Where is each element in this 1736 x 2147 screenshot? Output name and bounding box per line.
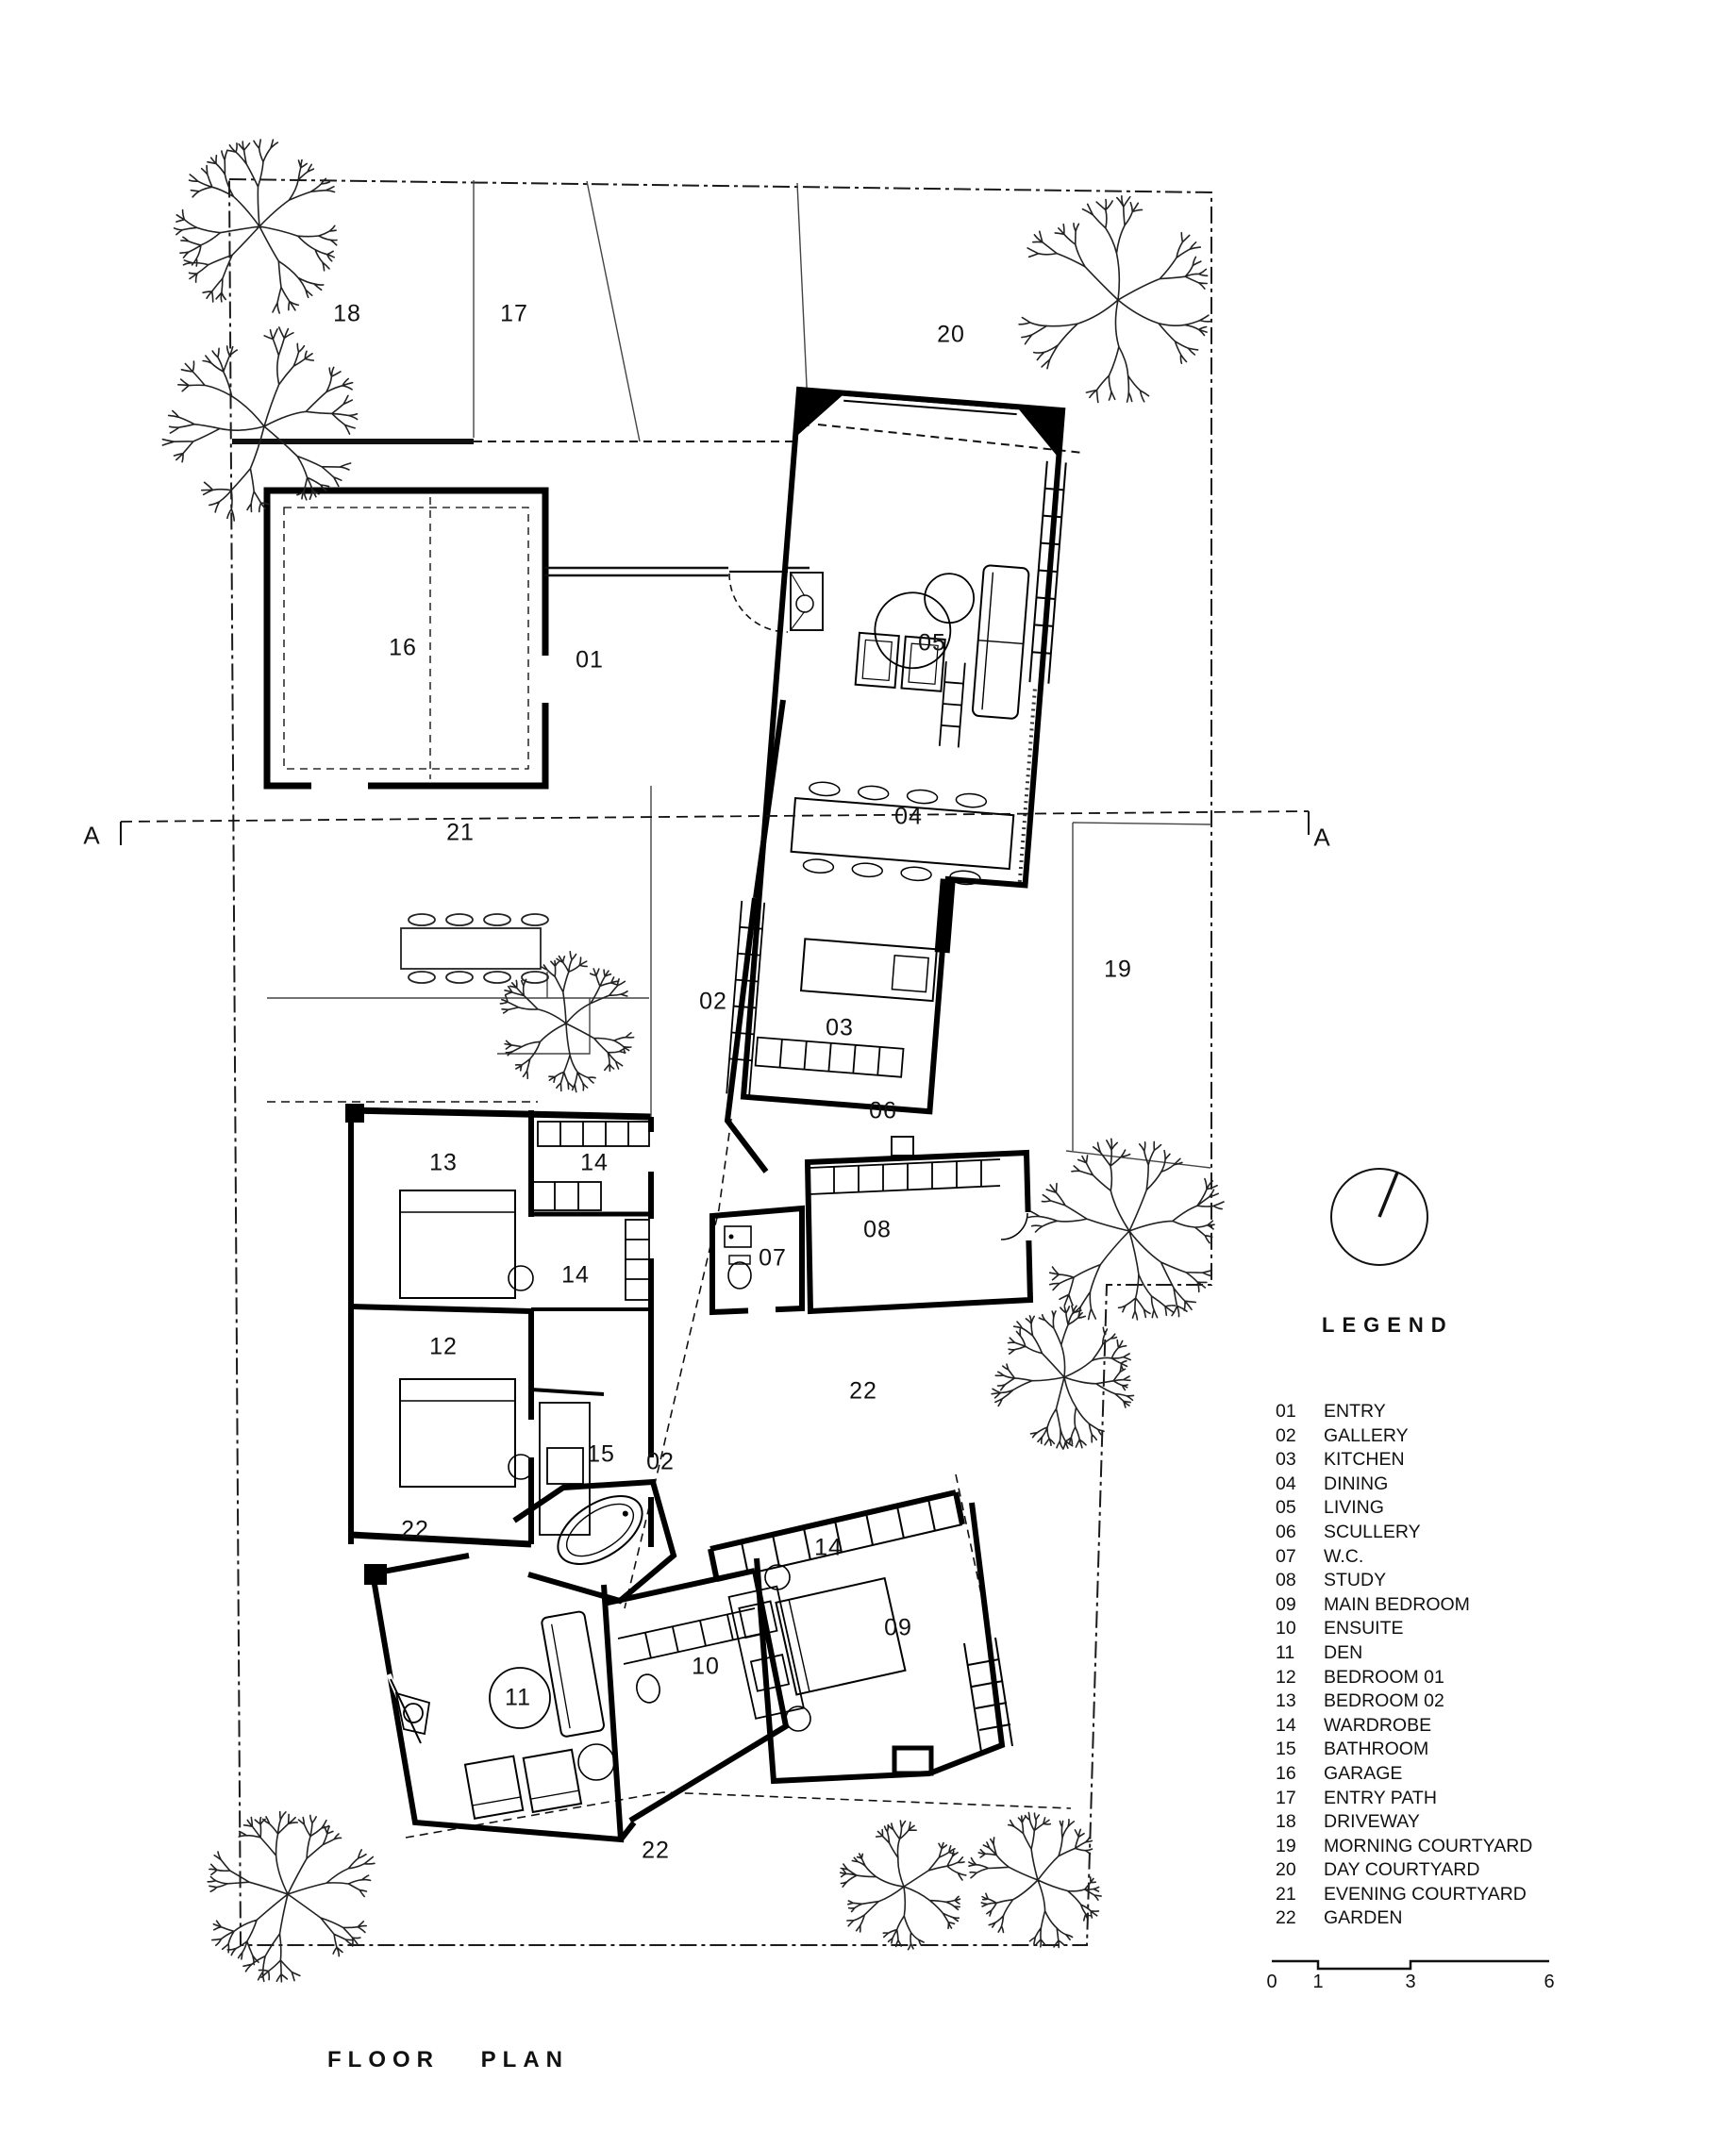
legend-row: 02GALLERY [1276,1424,1532,1449]
room-label-12: 12 [429,1334,458,1361]
door-frame [894,1748,931,1773]
room-label-01: 01 [576,647,604,674]
legend-num: 18 [1276,1810,1324,1835]
north-arrow-icon [1331,1169,1427,1265]
room-label-17: 17 [500,301,528,328]
ensuite-window [618,1608,760,1664]
room-label-14: 14 [580,1150,609,1177]
room-label-18: 18 [333,301,361,328]
legend-num: 13 [1276,1689,1324,1714]
study-door-arc [1001,1213,1027,1240]
kitchen-island [801,939,937,1001]
wc [712,1208,802,1312]
legend-label: SCULLERY [1324,1521,1532,1545]
den-sofa [541,1611,605,1738]
legend-label: DAY COURTYARD [1324,1858,1532,1883]
section-line [121,811,1309,845]
wardrobe-joinery [531,1122,649,1300]
room-label-08: 08 [863,1217,892,1244]
legend-label: BATHROOM [1324,1738,1532,1762]
legend-row: 06SCULLERY [1276,1521,1532,1545]
legend-row: 21EVENING COURTYARD [1276,1883,1532,1907]
legend-num: 14 [1276,1714,1324,1739]
legend-row: 01ENTRY [1276,1400,1532,1424]
legend-label: MORNING COURTYARD [1324,1835,1532,1859]
den-chairs [465,1746,581,1822]
legend-num: 04 [1276,1473,1324,1497]
room-label-14: 14 [561,1262,590,1290]
dining-table [790,780,1015,888]
section-marker-left: A [83,822,99,851]
scale-num-3: 3 [1405,1972,1415,1993]
scale-num-1: 1 [1312,1972,1323,1993]
terrace-column [892,1137,913,1156]
legend-label: GARDEN [1324,1906,1532,1931]
legend-num: 21 [1276,1883,1324,1907]
legend-label: MAIN BEDROOM [1324,1593,1532,1618]
legend-row: 17ENTRY PATH [1276,1787,1532,1811]
legend-row: 04DINING [1276,1473,1532,1497]
tree-icon [500,952,633,1092]
legend-row: 22GARDEN [1276,1906,1532,1931]
scale-num-6: 6 [1544,1972,1554,1993]
legend-row: 12BEDROOM 01 [1276,1666,1532,1690]
room-label-21: 21 [446,820,475,847]
den [364,1556,621,1839]
legend-row: 14WARDROBE [1276,1714,1532,1739]
room-label-19: 19 [1104,957,1132,984]
room-label-05: 05 [918,630,946,657]
legend-label: W.C. [1324,1545,1532,1570]
legend-label: BEDROOM 01 [1324,1666,1532,1690]
legend-label: GARAGE [1324,1762,1532,1787]
room-label-22: 22 [401,1517,429,1544]
legend-row: 07W.C. [1276,1545,1532,1570]
legend-title: LEGEND [1322,1313,1454,1338]
tree-icon [992,1306,1133,1449]
legend-label: EVENING COURTYARD [1324,1883,1532,1907]
room-label-14: 14 [814,1535,843,1562]
room-label-11: 11 [505,1685,531,1712]
room-label-15: 15 [587,1441,615,1469]
legend-label: LIVING [1324,1496,1532,1521]
legend-label: DRIVEWAY [1324,1810,1532,1835]
legend-num: 20 [1276,1858,1324,1883]
bed-bedroom01 [400,1379,533,1487]
legend-num: 08 [1276,1569,1324,1593]
fireplace-pier [935,878,956,953]
legend-label: STUDY [1324,1569,1532,1593]
legend-num: 12 [1276,1666,1324,1690]
legend-num: 19 [1276,1835,1324,1859]
legend-row: 11DEN [1276,1641,1532,1666]
scale-num-0: 0 [1266,1972,1277,1993]
legend-num: 10 [1276,1617,1324,1641]
room-label-09: 09 [884,1615,912,1642]
section-marker-right: A [1313,824,1329,853]
legend-row: 13BEDROOM 02 [1276,1689,1532,1714]
legend-row: 16GARAGE [1276,1762,1532,1787]
ensuite [604,1571,804,1839]
bed-bedroom02 [400,1190,533,1298]
shelf-unit [940,661,965,747]
scale-bar [1272,1961,1549,1969]
legend-num: 17 [1276,1787,1324,1811]
room-label-20: 20 [937,322,965,349]
legend-row: 15BATHROOM [1276,1738,1532,1762]
legend-num: 06 [1276,1521,1324,1545]
legend-row: 08STUDY [1276,1569,1532,1593]
legend-num: 07 [1276,1545,1324,1570]
room-label-13: 13 [429,1150,458,1177]
room-label-04: 04 [894,804,923,831]
tree-icon [208,1812,375,1982]
tree-icon [841,1821,966,1950]
room-label-06: 06 [869,1098,897,1125]
study [808,1153,1030,1311]
room-label-10: 10 [692,1654,720,1681]
legend-num: 11 [1276,1641,1324,1666]
legend-row: 10ENSUITE [1276,1617,1532,1641]
legend-label: ENTRY [1324,1400,1532,1424]
room-label-07: 07 [759,1245,787,1273]
study-window [810,1159,1000,1194]
legend-label: ENTRY PATH [1324,1787,1532,1811]
legend-num: 16 [1276,1762,1324,1787]
legend-num: 03 [1276,1448,1324,1473]
scullery-counter [756,1038,904,1077]
legend-num: 22 [1276,1906,1324,1931]
legend-label: KITCHEN [1324,1448,1532,1473]
legend-row: 18DRIVEWAY [1276,1810,1532,1835]
outdoor-table [401,786,651,1117]
fence-and-canopy-lines [232,424,1083,1838]
legend: 01ENTRY02GALLERY03KITCHEN04DINING05LIVIN… [1276,1400,1532,1931]
legend-row: 05LIVING [1276,1496,1532,1521]
room-label-02: 02 [646,1449,675,1476]
room-label-16: 16 [389,635,417,662]
room-label-22: 22 [849,1378,877,1406]
tree-icon [175,140,337,313]
floor-plan-page: LEGEND 01ENTRY02GALLERY03KITCHEN04DINING… [0,0,1736,2147]
legend-label: DEN [1324,1641,1532,1666]
drawing-title: FLOOR PLAN [327,2047,569,2073]
room-label-02: 02 [699,989,727,1016]
main-bedroom [710,1492,1012,1781]
legend-num: 09 [1276,1593,1324,1618]
legend-num: 05 [1276,1496,1324,1521]
legend-label: GALLERY [1324,1424,1532,1449]
legend-label: BEDROOM 02 [1324,1689,1532,1714]
legend-num: 02 [1276,1424,1324,1449]
legend-row: 09MAIN BEDROOM [1276,1593,1532,1618]
tree-icon [1019,196,1210,403]
room-label-22: 22 [642,1838,670,1865]
legend-label: WARDROBE [1324,1714,1532,1739]
legend-row: 03KITCHEN [1276,1448,1532,1473]
room-label-03: 03 [826,1015,854,1042]
legend-row: 19MORNING COURTYARD [1276,1835,1532,1859]
legend-num: 01 [1276,1400,1324,1424]
legend-row: 20DAY COURTYARD [1276,1858,1532,1883]
legend-label: ENSUITE [1324,1617,1532,1641]
legend-label: DINING [1324,1473,1532,1497]
tree-icon [969,1813,1101,1948]
legend-num: 15 [1276,1738,1324,1762]
